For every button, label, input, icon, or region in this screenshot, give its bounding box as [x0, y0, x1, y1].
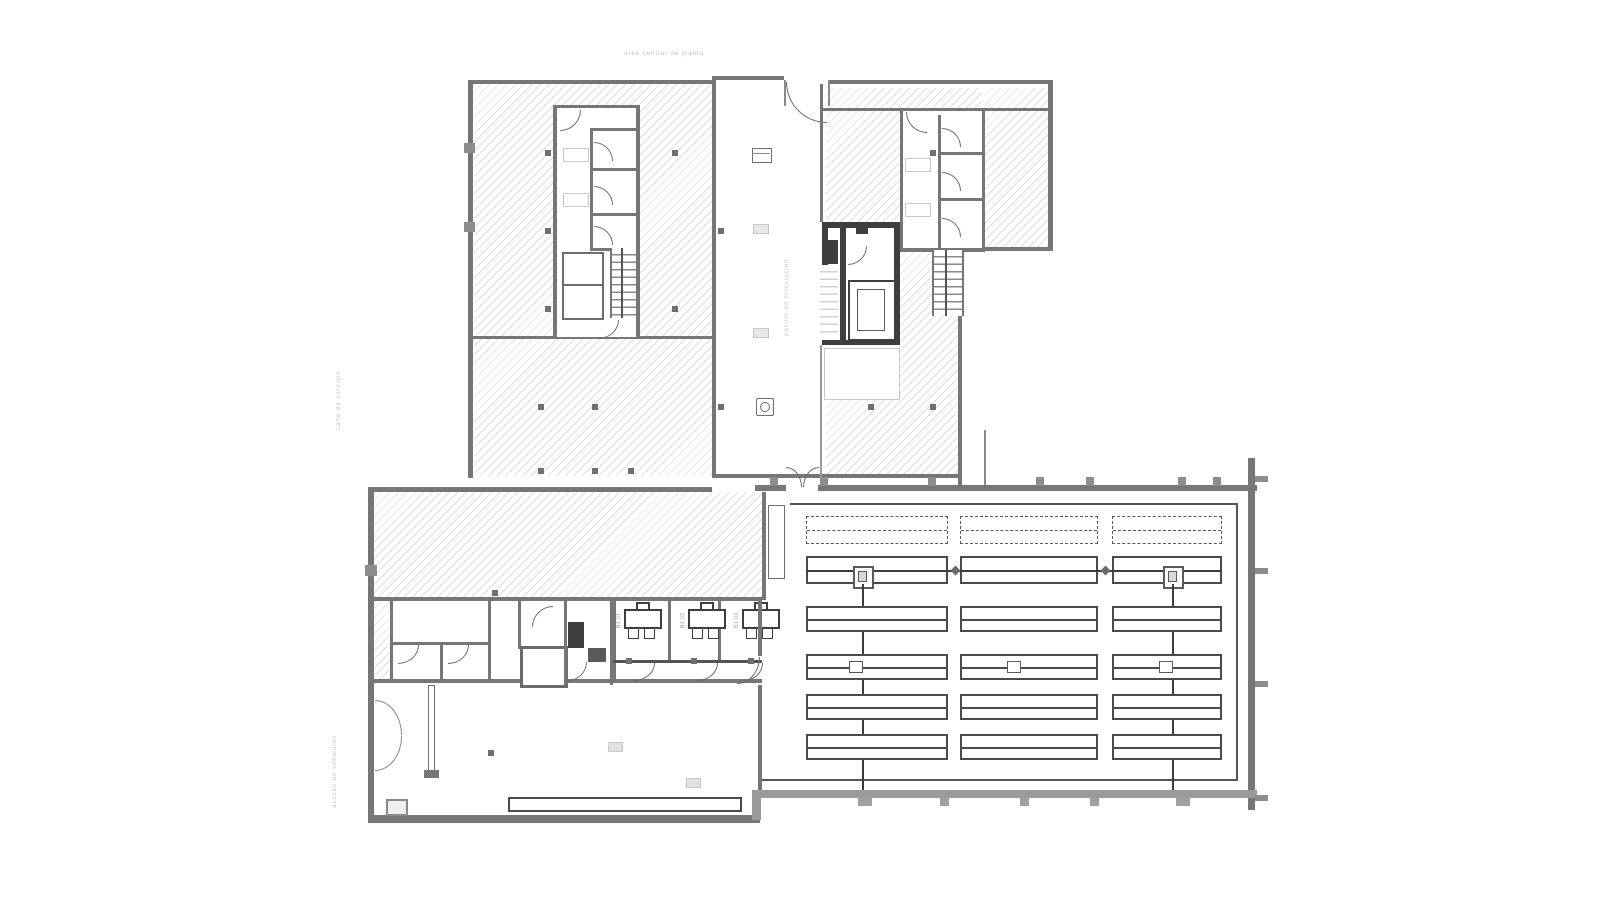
warehouse-right-tick-4 [1255, 795, 1268, 801]
conveyor-node-2 [1101, 565, 1111, 575]
room-door-arc-1 [398, 645, 419, 664]
warehouse-right-tick-3 [1255, 681, 1268, 687]
warehouse-bottom-tick-5 [1176, 798, 1190, 806]
warehouse-top-tick-1 [770, 477, 778, 486]
rack-r6-c2 [960, 734, 1098, 760]
warehouse-right-wall [1248, 458, 1255, 810]
desk-top [624, 609, 662, 629]
closet-1 [562, 252, 604, 288]
room-door-arc-2 [448, 645, 469, 664]
hatch-upper-right-strip [826, 88, 982, 110]
warehouse-double-door-left [786, 467, 802, 487]
rack-shelf-line [807, 530, 947, 531]
stair-right-block [932, 250, 964, 316]
wall-corridor-right-lower [820, 345, 822, 478]
left-upper-label: calle de servicio [336, 366, 342, 430]
wall-shaft-left [564, 601, 567, 685]
wall-right-band-left [900, 110, 903, 251]
warehouse-top-tick-6 [1178, 477, 1186, 486]
rack-r5-c2 [960, 694, 1098, 720]
wall-right-band-top [822, 108, 1053, 111]
wall-rooms-left [553, 105, 557, 339]
warehouse-double-door-right [803, 467, 819, 487]
stair-rail [621, 248, 623, 318]
column-dot-7 [592, 468, 598, 474]
desk-label: B1 01 [616, 602, 622, 628]
warehouse-top-tick-2 [820, 477, 828, 486]
desk-label: B1 03 [734, 602, 740, 628]
wall-stall-2 [590, 168, 638, 171]
column-dot-12 [868, 404, 874, 410]
column-left-wall-2 [464, 222, 475, 232]
rack-shelf-line [1113, 530, 1221, 531]
junction-box-inner [1168, 571, 1177, 582]
sink-3 [905, 158, 931, 172]
wall-warehouse-shared-lower [758, 685, 762, 793]
drinking-fountain-circle [760, 402, 770, 412]
column-dot-6 [538, 468, 544, 474]
wall-right-stall-1 [938, 152, 985, 155]
wall-room-left-b [488, 601, 491, 681]
column-dot-17 [488, 750, 494, 756]
warehouse-right-tick-1 [1255, 476, 1268, 482]
junction-box-1 [853, 566, 874, 589]
desk-group-1: B1 01 [620, 602, 668, 642]
stair-faint-left [820, 265, 838, 333]
elevator-car [857, 289, 885, 331]
rack-mid-mark-2 [1007, 661, 1021, 673]
warehouse-top-tick-3 [928, 477, 936, 486]
warehouse-bottom-tick-3 [1020, 798, 1029, 806]
desk-chair-1 [692, 628, 703, 639]
column-dot-4 [538, 404, 544, 410]
stair-left-block [610, 248, 638, 318]
junction-box-2 [1163, 566, 1184, 589]
left-lower-label: acceso de vehiculos [332, 742, 338, 808]
desk-group-2: B1 02 [684, 602, 732, 642]
entrance-door-arc-1 [375, 700, 402, 735]
hatch-offices-left-strip [374, 601, 390, 679]
partition-foot [424, 770, 439, 778]
double-height-void [824, 348, 900, 400]
warehouse-inner-bottom-line [762, 779, 1238, 781]
rack-shelf-line [1114, 707, 1220, 709]
wall-stall-divider-v [590, 128, 593, 250]
column-dot-3 [545, 306, 551, 312]
stair-right-rail [945, 250, 947, 316]
rack-r1-c3 [1112, 516, 1222, 544]
column-dot-5 [592, 404, 598, 410]
wall-left-outer-upper [468, 80, 473, 478]
equip-door-arc [532, 606, 553, 627]
warehouse-right-top-seg [1238, 485, 1250, 491]
desk-top [688, 609, 726, 629]
column-dot-15 [718, 404, 724, 410]
desk-chair-2 [644, 628, 655, 639]
loading-bench [508, 797, 742, 812]
warehouse-left-wall [762, 492, 766, 600]
rack-shelf-line [1114, 747, 1220, 749]
column-dot-16 [492, 590, 498, 596]
desk-chair-1 [746, 628, 757, 639]
corridor-mark-1 [753, 224, 769, 234]
warehouse-bottom-tick-4 [1090, 798, 1099, 806]
wall-stall-3 [590, 213, 638, 216]
warehouse-right-tick-2 [1255, 568, 1268, 574]
closet-2 [562, 284, 604, 320]
core-patch-1 [826, 240, 838, 264]
rack-r6-c1 [806, 734, 948, 760]
wall-corridor-right-upper [820, 84, 823, 222]
rack-r4-c2 [960, 654, 1098, 680]
rack-r1-c2 [960, 516, 1098, 544]
partition-wall [428, 685, 435, 773]
desk-chair-1 [628, 628, 639, 639]
desk-label: B1 02 [680, 602, 686, 628]
floor-mark-2 [686, 778, 701, 788]
rack-shelf-line [962, 707, 1096, 709]
warehouse-bottom-tick-1 [858, 798, 872, 806]
rack-shelf-line [962, 667, 1096, 669]
column-dot-13 [930, 404, 936, 410]
wall-rooms-top [553, 105, 640, 108]
rack-r3-c1 [806, 606, 948, 632]
wall-left-outer-lower [368, 487, 374, 821]
column-left-outer-1 [365, 565, 377, 576]
warehouse-bottom-wall [755, 790, 1257, 798]
rack-shelf-line [808, 667, 946, 669]
entry-door-jamb-right [828, 80, 830, 106]
wall-right-stall-2 [938, 198, 985, 201]
wall-fragment [984, 430, 986, 487]
corridor-mark-2 [753, 328, 769, 338]
rack-mid-mark-1 [849, 661, 863, 673]
sink-1 [563, 148, 589, 162]
warehouse-pilaster [768, 505, 785, 579]
hatch-below-core [826, 400, 958, 476]
column-dot-9 [672, 150, 678, 156]
hatch-middle-band [374, 492, 762, 597]
rack-shelf-line [1114, 619, 1220, 621]
wall-bottom-outer [368, 815, 760, 823]
rack-r4-c1 [806, 654, 948, 680]
conveyor-node-1 [951, 565, 961, 575]
wall-top-right [828, 80, 1053, 84]
wall-equip-left [518, 601, 521, 649]
rack-shelf-line [962, 619, 1096, 621]
hatch-far-right-block [985, 88, 1048, 248]
rack-shelf-line [808, 707, 946, 709]
rack-r6-c3 [1112, 734, 1222, 760]
cubicle-col-1 [626, 658, 632, 664]
rack-shelf-line [961, 530, 1097, 531]
column-dot-11 [930, 150, 936, 156]
column-dot-2 [545, 228, 551, 234]
sink-2 [563, 193, 589, 207]
warehouse-top-tick-4 [1036, 477, 1044, 486]
warehouse-inner-right-line [1236, 503, 1238, 781]
desk-chair-2 [708, 628, 719, 639]
desk-group-3: B1 03 [738, 602, 786, 642]
rack-r5-c3 [1112, 694, 1222, 720]
shaft-fill-1 [568, 622, 584, 648]
core-patch-2 [856, 222, 868, 234]
wall-room-divider-v [440, 642, 443, 681]
corridor-sink-line [752, 153, 770, 154]
corridor-sink [752, 148, 772, 163]
rack-shelf-line [808, 619, 946, 621]
wall-middle-band-top [368, 487, 712, 492]
machine-box [520, 646, 568, 688]
warehouse-bottom-tick-2 [940, 798, 949, 806]
junction-box-inner [858, 571, 867, 582]
wall-bottom-upper-building [712, 474, 962, 478]
wall-right-band-mid [938, 115, 941, 251]
column-left-wall-1 [464, 143, 475, 153]
wall-room-left-a [390, 601, 393, 681]
column-dot-8 [628, 468, 634, 474]
rack-r3-c3 [1112, 606, 1222, 632]
floor-mark-1 [608, 742, 623, 752]
wall-stall-1 [590, 128, 638, 131]
corner-box [386, 799, 408, 816]
floor-plan: pasillo de circulacion B1 01B1 02B1 03 [0, 0, 1600, 900]
wall-top-left [468, 80, 714, 84]
rack-mid-mark-3 [1159, 661, 1173, 673]
rack-r5-c1 [806, 694, 948, 720]
rack-r1-c1 [806, 516, 948, 544]
rack-shelf-line [808, 747, 946, 749]
corridor-label: pasillo de circulacion [784, 252, 790, 336]
wall-right-band-right [982, 110, 985, 251]
wall-warehouse-shared-upper [758, 601, 762, 656]
warehouse-inner-top-line [790, 503, 1238, 505]
rack-shelf-line [962, 747, 1096, 749]
warehouse-top-tick-5 [1086, 477, 1094, 486]
plan-title-label: area central de planta [624, 51, 704, 57]
wall-corridor-left [712, 80, 716, 478]
wall-cubicle-div-1 [668, 601, 671, 663]
column-dot-14 [718, 228, 724, 234]
column-dot-10 [672, 306, 678, 312]
sink-4 [905, 203, 931, 217]
entrance-door-arc-2 [375, 736, 402, 771]
warehouse-top-tick-7 [1213, 477, 1221, 486]
wall-top-corridor [712, 76, 784, 80]
rack-r3-c2 [960, 606, 1098, 632]
column-dot-1 [545, 150, 551, 156]
shaft-fill-2 [588, 648, 606, 662]
core-wall-mid [840, 228, 846, 345]
hatch-upper-right-left [826, 110, 900, 222]
desk-chair-2 [762, 628, 773, 639]
